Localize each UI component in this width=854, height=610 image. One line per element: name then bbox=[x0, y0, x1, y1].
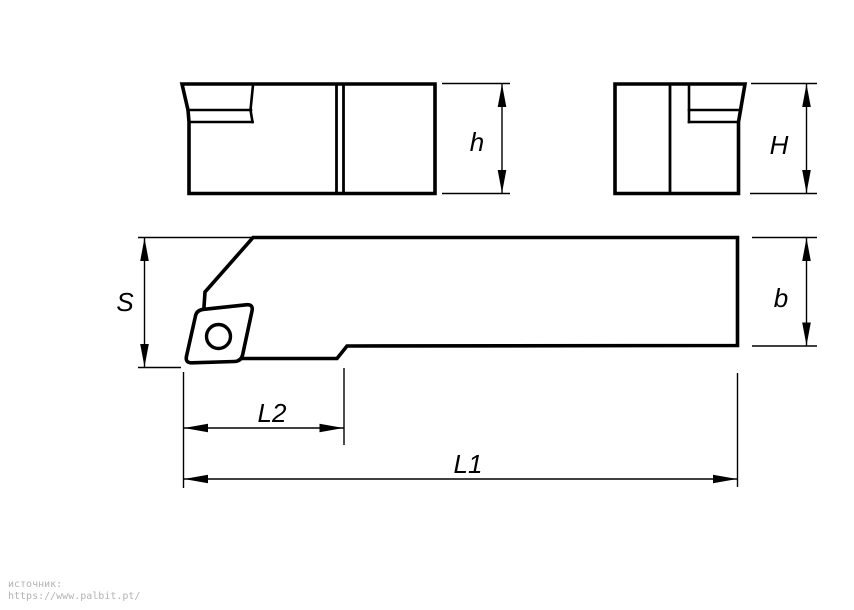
source-caption: источник: bbox=[8, 579, 62, 590]
dim-S-arrow-up bbox=[140, 238, 149, 261]
side-view bbox=[182, 84, 435, 194]
insert-screw-hole bbox=[207, 325, 231, 349]
dim-H-arrow-down bbox=[802, 170, 811, 193]
dim-b-arrow-down bbox=[802, 323, 811, 346]
dimension-L2: L2 bbox=[184, 368, 345, 488]
main-view-body-outline bbox=[204, 238, 738, 359]
source-url: https://www.palbit.pt/ bbox=[8, 591, 140, 602]
dim-L2-arrow-left bbox=[184, 424, 208, 433]
dim-L1-arrow-right bbox=[713, 475, 737, 484]
end-view-outline bbox=[615, 84, 745, 194]
dimension-H: H bbox=[750, 84, 817, 194]
end-view bbox=[615, 84, 745, 194]
dim-label-L2: L2 bbox=[258, 398, 287, 428]
dim-label-S: S bbox=[116, 287, 134, 317]
dim-label-H: H bbox=[770, 130, 789, 160]
dim-L2-arrow-right bbox=[320, 424, 344, 433]
side-view-insert-pocket-slant bbox=[251, 85, 254, 122]
dim-h-arrow-up bbox=[498, 84, 507, 107]
dimension-h: h bbox=[442, 84, 510, 194]
dim-label-L1: L1 bbox=[454, 449, 483, 479]
dim-H-arrow-up bbox=[802, 84, 811, 107]
dim-label-h: h bbox=[470, 127, 484, 157]
dim-L1-arrow-left bbox=[184, 475, 208, 484]
dim-b-arrow-up bbox=[802, 238, 811, 261]
dimension-L1: L1 bbox=[184, 373, 738, 487]
technical-drawing-canvas: h H S b bbox=[0, 0, 854, 610]
side-view-outline bbox=[182, 84, 435, 194]
tool-holder-drawing: h H S b bbox=[0, 0, 854, 610]
source-attribution: источник: https://www.palbit.pt/ bbox=[8, 579, 140, 602]
dim-label-b: b bbox=[774, 283, 788, 313]
dimension-b: b bbox=[752, 238, 817, 347]
dim-h-arrow-down bbox=[498, 170, 507, 193]
dim-S-arrow-down bbox=[140, 344, 149, 367]
main-view bbox=[186, 238, 737, 363]
